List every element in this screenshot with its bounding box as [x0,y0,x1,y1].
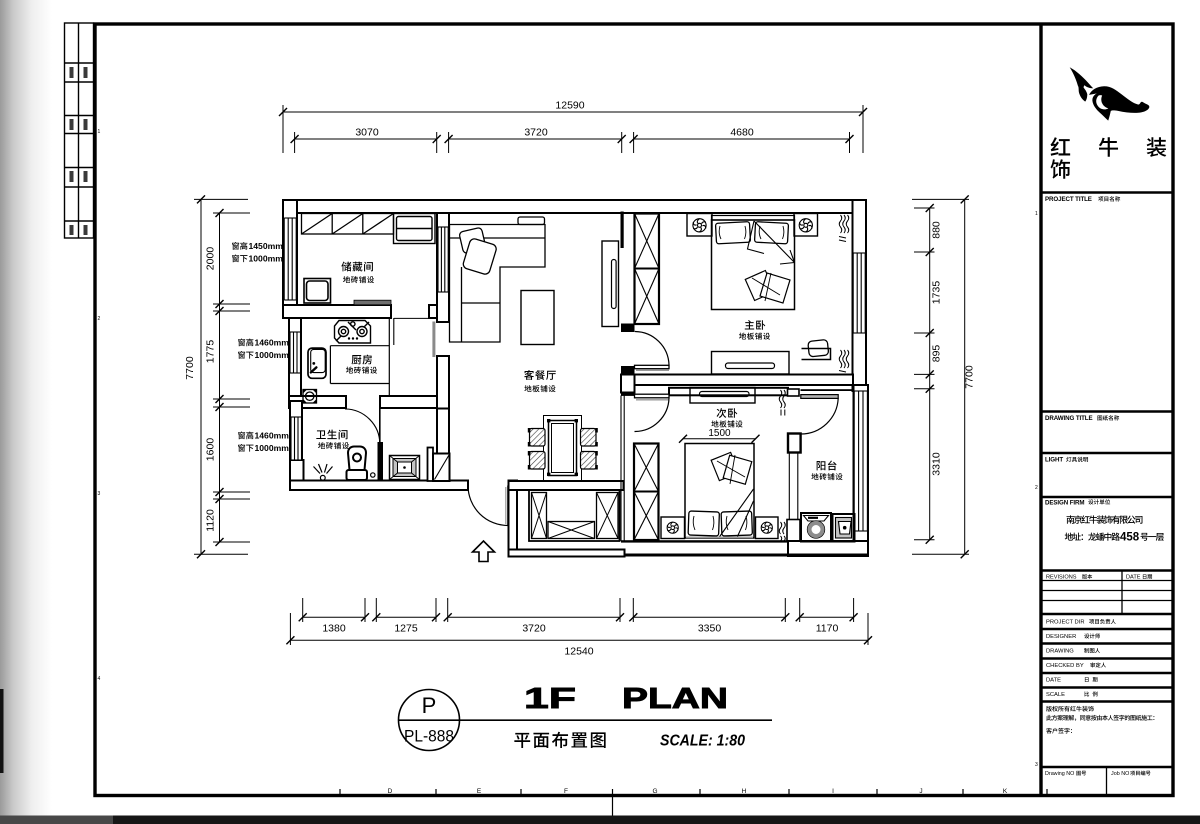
svg-text:2: 2 [98,316,101,322]
svg-text:DATE: DATE [1046,678,1061,684]
svg-text:K: K [1003,788,1008,795]
svg-text:1275: 1275 [394,623,418,635]
svg-text:DESIGN FIRM: DESIGN FIRM [1045,500,1084,507]
svg-text:SCALE: 1:80: SCALE: 1:80 [660,733,745,750]
svg-text:1450mm: 1450mm [249,241,284,251]
svg-text:J: J [919,788,922,795]
svg-text:PLAN: PLAN [622,683,728,715]
svg-text:1000mm: 1000mm [249,254,284,264]
svg-text:2: 2 [1035,485,1038,491]
svg-text:REVISIONS: REVISIONS [1046,575,1077,581]
svg-text:12590: 12590 [555,100,584,112]
svg-text:3070: 3070 [355,127,379,139]
svg-text:1600: 1600 [205,438,217,462]
svg-text:1460mm: 1460mm [255,431,290,441]
svg-text:4: 4 [98,676,101,682]
svg-text:3: 3 [98,491,101,497]
svg-text:1170: 1170 [816,623,839,635]
svg-text:3720: 3720 [524,127,548,139]
svg-text:F: F [564,788,568,795]
svg-text:DATE: DATE [1126,575,1141,581]
svg-text:1F: 1F [524,683,576,715]
svg-text:1735: 1735 [931,281,943,305]
svg-text:4680: 4680 [730,127,754,139]
svg-text:LIGHT: LIGHT [1045,457,1063,464]
svg-text:895: 895 [931,345,943,363]
svg-text:3350: 3350 [698,623,722,635]
svg-text:DRAWING TITLE: DRAWING TITLE [1045,415,1093,422]
svg-text:1: 1 [1035,211,1038,217]
svg-text:1775: 1775 [205,340,217,364]
svg-text:7700: 7700 [964,365,976,389]
svg-text:G: G [652,788,657,795]
svg-text:PROJECT TITLE: PROJECT TITLE [1045,196,1092,203]
svg-text:P: P [422,693,437,718]
svg-text:Drawing NO: Drawing NO [1045,771,1074,777]
svg-text:DESIGNER: DESIGNER [1046,634,1076,640]
svg-text:1380: 1380 [322,623,346,635]
svg-text:1: 1 [98,129,101,135]
svg-text:E: E [477,788,482,795]
svg-text:1460mm: 1460mm [255,338,290,348]
svg-text:PROJECT DIR: PROJECT DIR [1046,620,1085,626]
svg-text:DRAWING: DRAWING [1046,649,1074,655]
svg-text:H: H [742,788,747,795]
svg-text:12540: 12540 [564,646,593,658]
svg-text:CHECKED BY: CHECKED BY [1046,663,1084,669]
svg-text:458: 458 [1120,532,1140,544]
svg-text:7700: 7700 [184,356,196,380]
svg-text:1500: 1500 [708,428,731,439]
svg-text:880: 880 [931,221,943,239]
svg-text:D: D [388,788,393,795]
svg-text:I: I [832,788,834,795]
svg-text:1000mm: 1000mm [255,350,290,360]
svg-text:3720: 3720 [522,623,546,635]
svg-text:SCALE: SCALE [1046,692,1065,698]
svg-text:1000mm: 1000mm [255,443,290,453]
svg-text:PL-888: PL-888 [404,728,454,746]
svg-text:3310: 3310 [931,452,943,476]
svg-text:Job NO: Job NO [1111,771,1129,777]
svg-text:3: 3 [1035,762,1038,768]
svg-text:1120: 1120 [205,509,217,532]
svg-text:2000: 2000 [205,247,217,271]
